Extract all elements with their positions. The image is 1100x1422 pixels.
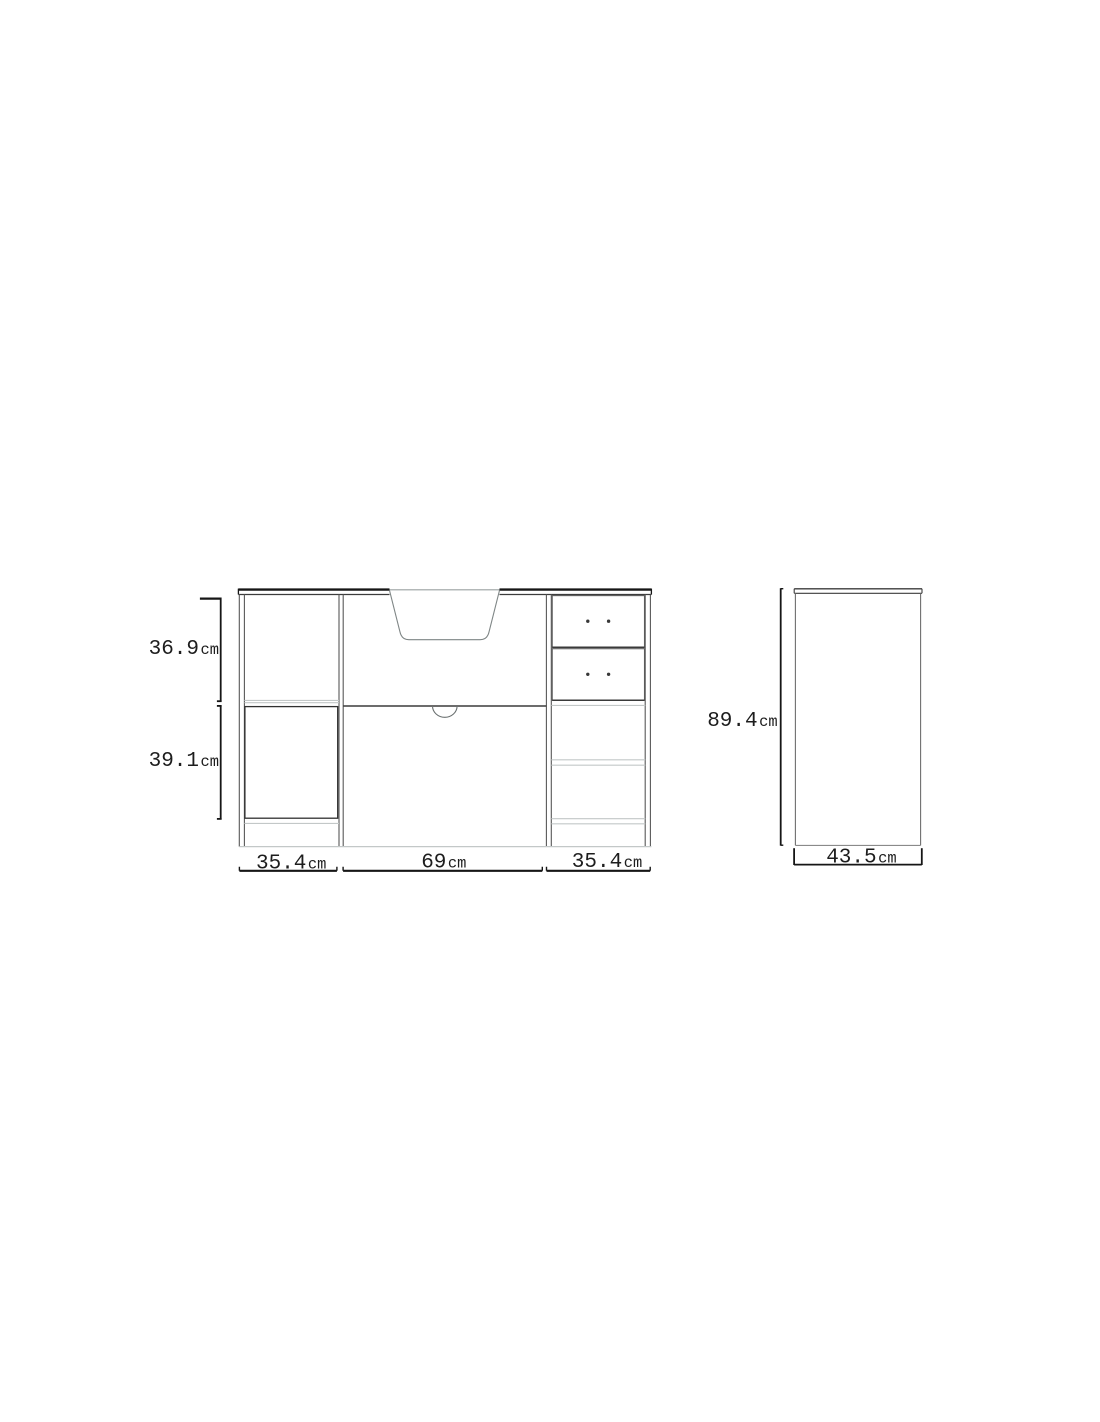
svg-text:43.5cm: 43.5cm: [826, 847, 896, 870]
svg-text:35.4cm: 35.4cm: [256, 852, 326, 875]
svg-text:36.9cm: 36.9cm: [149, 638, 219, 661]
svg-text:35.4cm: 35.4cm: [572, 851, 642, 874]
svg-text:39.1cm: 39.1cm: [149, 750, 219, 773]
svg-text:69cm: 69cm: [421, 852, 466, 875]
svg-text:89.4cm: 89.4cm: [707, 710, 777, 733]
